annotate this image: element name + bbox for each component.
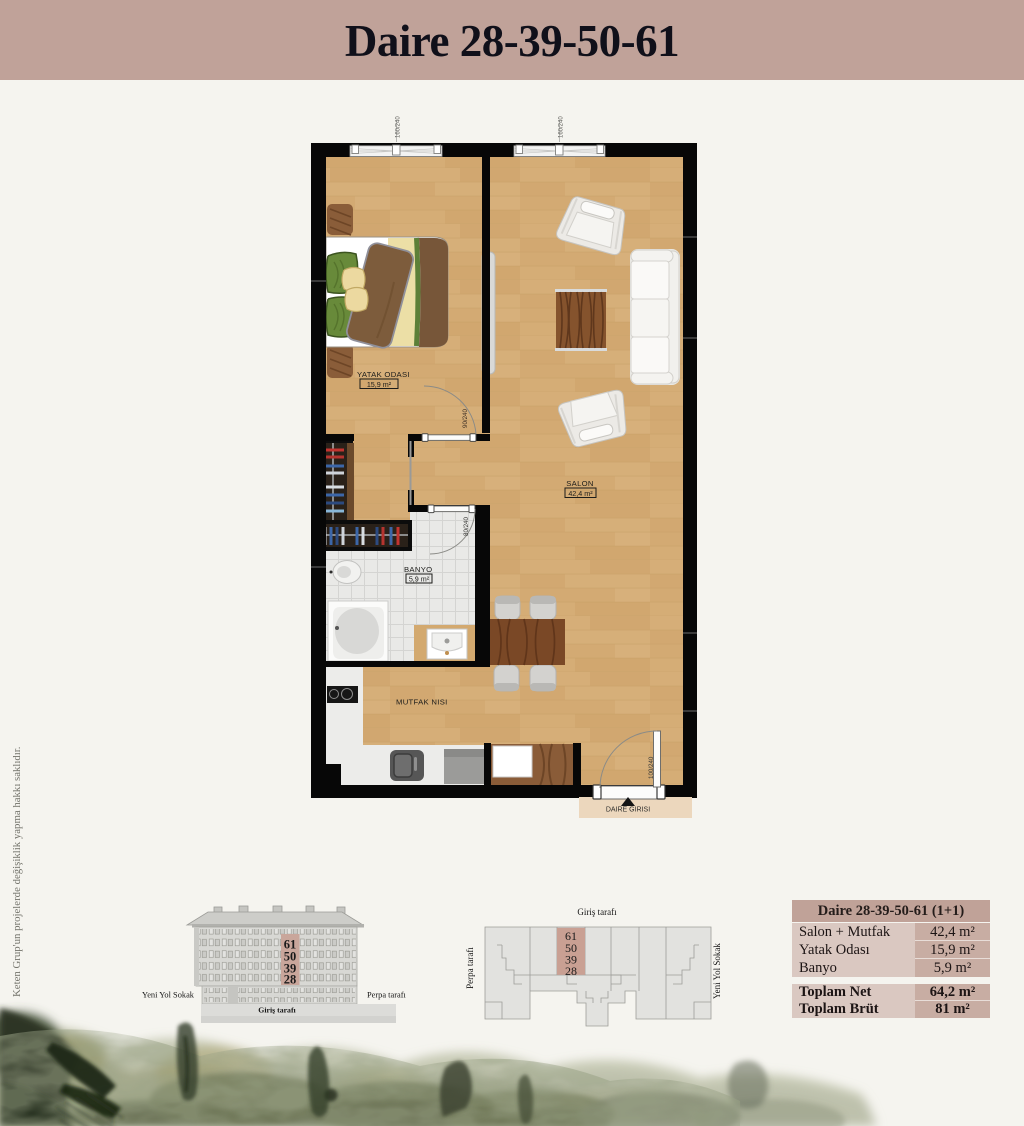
svg-text:80/240: 80/240 [463,517,470,536]
svg-text:15,9 m²: 15,9 m² [367,380,392,389]
svg-text:MUTFAK NISI: MUTFAK NISI [396,698,448,707]
svg-text:DAIRE GIRISI: DAIRE GIRISI [606,807,650,814]
svg-text:YATAK ODASI: YATAK ODASI [357,370,410,379]
svg-text:5,9 m²: 5,9 m² [409,575,430,584]
svg-text:90/240: 90/240 [462,409,469,428]
svg-text:42,4 m²: 42,4 m² [568,489,593,498]
svg-text:BANYO: BANYO [404,565,432,574]
svg-text:160/240: 160/240 [396,116,402,138]
svg-text:100/240: 100/240 [648,756,655,779]
svg-text:SALON: SALON [566,479,594,488]
svg-text:160/240: 160/240 [559,116,565,138]
